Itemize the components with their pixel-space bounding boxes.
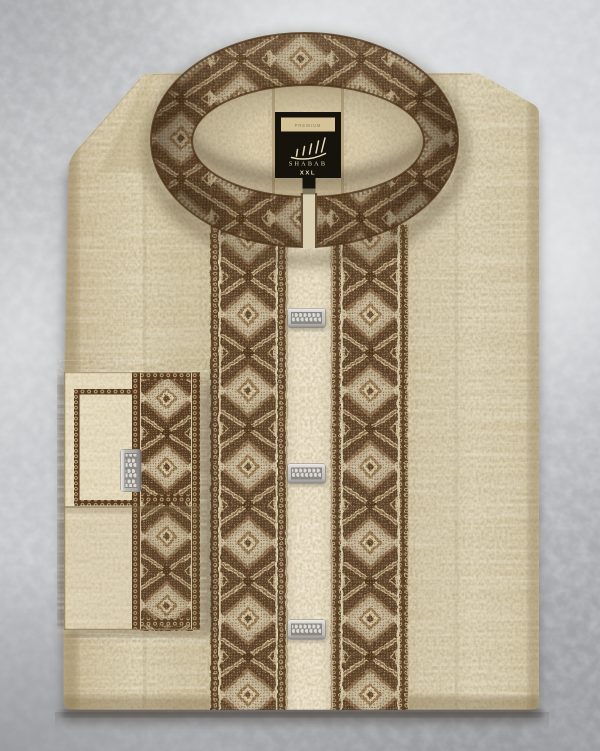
svg-text:SHABAB: SHABAB [289, 161, 327, 168]
svg-text:PREMIUM: PREMIUM [295, 123, 322, 128]
svg-text:XXL: XXL [300, 171, 316, 177]
